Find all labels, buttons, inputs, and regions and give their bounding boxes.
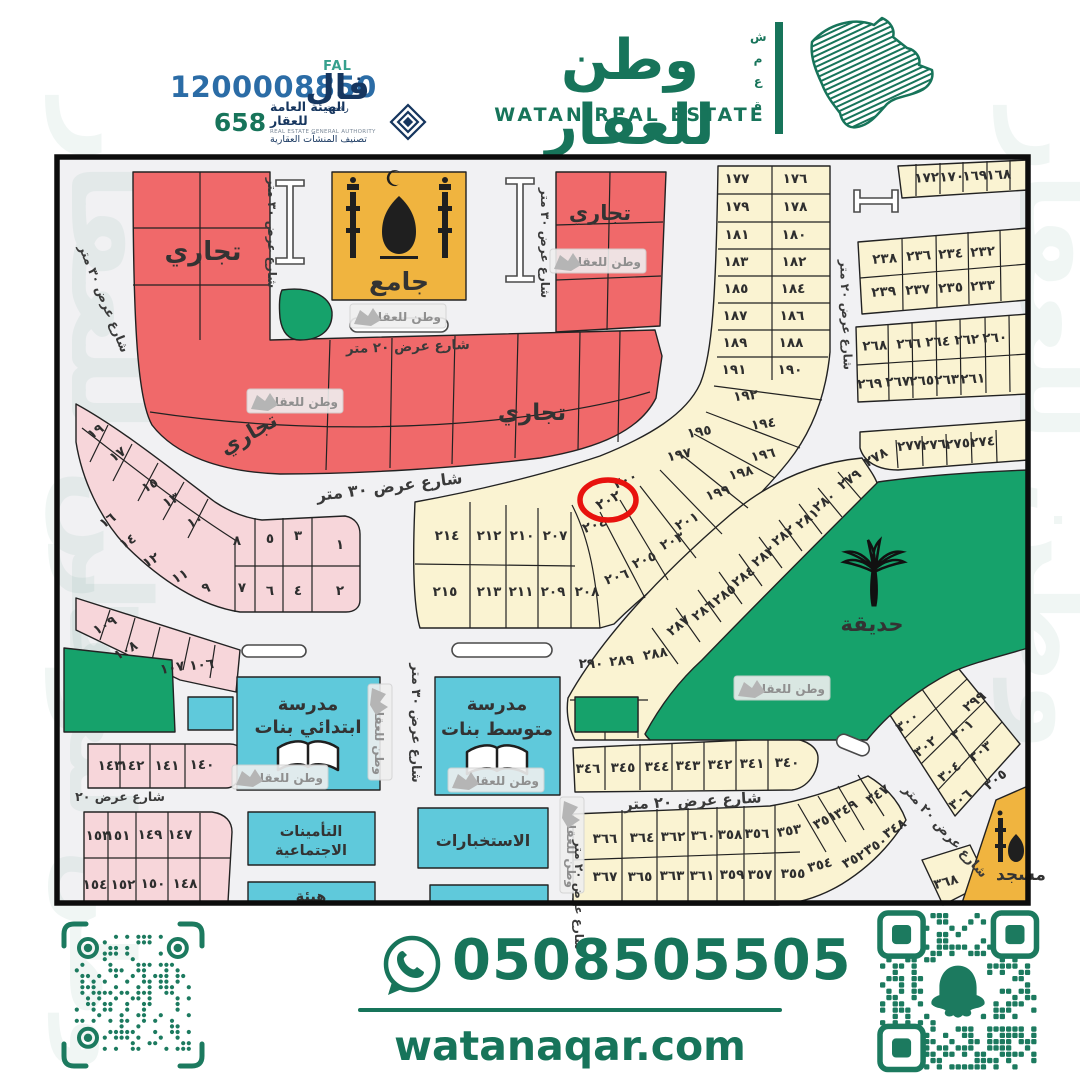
plot-number: ١٤١ <box>155 758 180 774</box>
plot-number: ٢٦٠ <box>982 329 1008 346</box>
footer-divider <box>358 1008 782 1012</box>
plot-number: ٢٦٣ <box>934 371 960 388</box>
area-label: تجاري <box>569 201 631 226</box>
plot-number: ٢٦٦ <box>896 335 922 352</box>
plot-number: ١٤٧ <box>168 827 193 843</box>
plot-number: ٢١١ <box>509 584 534 600</box>
plot-number: ١٨٤ <box>781 281 806 297</box>
plot-number: ١٨٨ <box>779 335 804 351</box>
plot-number: ١٨٥ <box>724 281 749 297</box>
plot-number: ١٨٦ <box>780 308 805 324</box>
plot-number: ٣٤٤ <box>645 759 670 775</box>
plot-number: ١٧٩ <box>725 199 750 215</box>
plot-number: ١٨٢ <box>782 254 807 270</box>
plot-number: ٣٥٨ <box>718 827 743 843</box>
plot-number: ٣٤٣ <box>676 758 701 774</box>
plot-number: ٣٦٠ <box>691 828 716 844</box>
area-label: تجاري <box>164 237 241 267</box>
street-label: شارع عرض ٢٠ <box>75 789 165 804</box>
area-label: الاجتماعية <box>275 843 347 859</box>
whatsapp-icon <box>375 930 447 1002</box>
plot-number: ٣٤٥ <box>611 760 636 776</box>
watermark-text: وطن للعقار <box>371 704 386 775</box>
plot-number: ١٧٨ <box>783 199 808 215</box>
street-label: شارع عرض ٣٠ متر <box>265 177 279 288</box>
plot-number: ٧ <box>238 580 247 596</box>
plot-number: ٢١٣ <box>477 584 502 600</box>
plot-number: ٢١٤ <box>435 528 460 544</box>
plot-number: ١ <box>336 537 344 553</box>
qr-code-right <box>872 903 1044 1080</box>
plot-number: ٢٦١ <box>960 370 986 387</box>
park-small <box>575 697 638 732</box>
plot-number: ٦ <box>266 583 274 599</box>
plot-number: ٢٧٥ <box>945 435 971 453</box>
plot-number: ١٨٣ <box>724 254 749 270</box>
watermark-stamp: وطن للعقار <box>550 249 646 273</box>
watermark-stamp: وطن للعقار <box>734 676 830 700</box>
plot-number: ٣٦٣ <box>660 868 685 884</box>
plot-number: ٣٦١ <box>690 868 715 884</box>
plot-number: ١٨١ <box>725 227 750 243</box>
plot-number: ١٧٠ <box>939 168 965 185</box>
plot-number: ٣٥٩ <box>720 867 745 883</box>
plot-number: ١٨٩ <box>723 335 748 351</box>
plot-number: ٢٦٩ <box>857 375 883 392</box>
plot-number: ٣٦٦ <box>593 831 618 847</box>
watermark-stamp: وطن للعقار <box>350 304 446 328</box>
plot-number: ١٤٨ <box>173 876 198 892</box>
plot-number: ٢٣٢ <box>970 243 997 261</box>
qr-code-left <box>58 916 208 1076</box>
plot-number: ٢١٠ <box>510 528 535 544</box>
watermark-stamp: وطن للعقار <box>368 684 392 780</box>
area-label: مسجد <box>996 865 1046 885</box>
plot-number: ٢٣٤ <box>938 245 964 263</box>
plot-number: ٣٦٢ <box>661 829 686 845</box>
plot-number: ٢٧٧ <box>897 437 924 455</box>
civic-block <box>188 697 233 730</box>
plot-number: ٢٣٦ <box>906 247 932 265</box>
plot-number: ١٥٠ <box>141 876 166 892</box>
watermark-stamp: وطن للعقار <box>232 765 328 789</box>
plot-number: ١٧٦ <box>783 171 808 187</box>
plot-number: ٣٤١ <box>740 756 765 772</box>
plot-number: ٤ <box>294 583 302 599</box>
plot-number: ٢٧٤ <box>970 433 996 451</box>
area-label: ابتدائي بنات <box>254 717 361 738</box>
plot-number: ١٨٠ <box>782 227 807 243</box>
plot-number: ١٧٢ <box>914 169 940 186</box>
watermark-text: وطن للعقار <box>370 310 441 325</box>
area-label: جامع <box>369 267 429 297</box>
plot-number: ٢٦٧ <box>885 373 911 390</box>
plot-number: ٣٤٢ <box>708 757 733 773</box>
plot-number: ١٥١ <box>106 828 131 844</box>
whatsapp-number: 0508505505 <box>452 928 792 993</box>
watermark-text: وطن للعقار <box>754 682 825 697</box>
area-label: تجاري <box>498 400 566 426</box>
plot-number: ٢٦٤ <box>925 333 951 350</box>
plot-number: ٢٠٨ <box>575 584 600 600</box>
plot-number: ١٥٤ <box>83 877 108 893</box>
watermark-text: وطن للعقار <box>468 774 539 789</box>
plot-number: ٢٣٥ <box>938 279 964 297</box>
plot-number: ١٠٦ <box>189 656 215 674</box>
street-label: شارع عرض ٣٠ متر <box>408 662 423 782</box>
plot-number: ٢٣٧ <box>905 281 932 299</box>
plot-number: ٢٦٥ <box>909 372 935 389</box>
plot-number: ٣٥٦ <box>745 826 770 842</box>
area-label: مدرسة <box>467 694 528 715</box>
plot-number: ٣٥٧ <box>748 867 773 883</box>
plot-number: ١٤٩ <box>138 827 163 843</box>
plot-number: ٣ <box>294 528 303 544</box>
plot-number: ٢٠٩ <box>541 584 566 600</box>
plot-number: ٢٣٣ <box>970 277 997 295</box>
plot-number: ٣٤٠ <box>775 755 800 771</box>
plot-number: ٢٩٠ <box>579 656 604 672</box>
plot-number: ١٤٠ <box>190 757 215 773</box>
plot-number: ٣٤٦ <box>576 761 601 777</box>
website-url: watanaqar.com <box>360 1022 780 1070</box>
plot-number: ٨ <box>233 533 242 549</box>
watermark-text: وطن للعقار <box>252 771 323 786</box>
plot-number: ٢٧٦ <box>921 436 947 454</box>
plot-number: ١٦٨ <box>986 166 1012 183</box>
watermark-stamp: وطن للعقار <box>448 768 544 792</box>
area-label: الاستخبارات <box>436 831 531 850</box>
plot-number: ١٦٩ <box>962 167 988 184</box>
plot-number: ٥ <box>266 531 274 547</box>
plot-number: ١٥٢ <box>111 877 136 893</box>
plot-number: ١٨٧ <box>723 308 748 324</box>
plot-number: ٢١٢ <box>477 528 502 544</box>
plot-number: ٢١٥ <box>433 584 458 600</box>
area-label: حديقة <box>841 612 904 636</box>
plot-number: ٢٨٩ <box>609 652 635 670</box>
plot-number: ١٩٤ <box>750 414 777 433</box>
plot-number: ٣٦٥ <box>628 869 653 885</box>
plot-number: ١٩٠ <box>778 362 803 378</box>
area-label: متوسط بنات <box>441 719 553 740</box>
watermark-stamp: وطن للعقار <box>247 389 343 413</box>
plot-number: ٢ <box>336 583 345 599</box>
plot-number: ٢٣٩ <box>871 283 897 301</box>
watermark-text: وطن للعقار <box>570 255 641 270</box>
area-label: التأمينات <box>280 822 343 840</box>
plot-number: ٣٦٧ <box>593 869 618 885</box>
watermark-text: وطن للعقار <box>267 395 338 410</box>
plot-number: ٢٣٨ <box>872 250 899 268</box>
plot-number: ١٤٢ <box>120 758 145 774</box>
plot-number: ١٩٢ <box>732 387 759 406</box>
plot-number: ٣٦٤ <box>630 830 655 846</box>
plot-number: ٣٥٥ <box>781 866 806 882</box>
plot-number: ١٧٧ <box>725 171 750 187</box>
street-label: شارع عرض ٣٠ متر <box>538 187 552 298</box>
plot-number: ١٩١ <box>722 362 747 378</box>
area-label: مدرسة <box>278 694 339 715</box>
plot-number: ٢٦٨ <box>862 337 888 354</box>
plot-number: ٢٠٧ <box>543 528 568 544</box>
plot-number: ٢٦٢ <box>954 331 980 348</box>
